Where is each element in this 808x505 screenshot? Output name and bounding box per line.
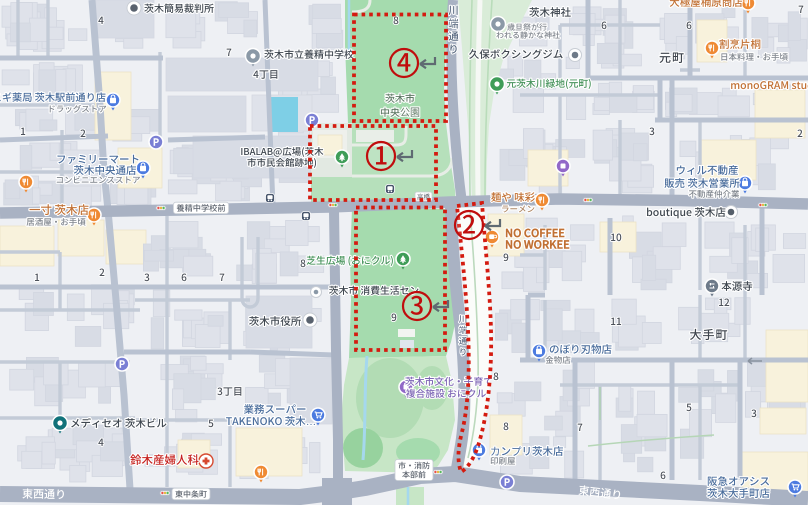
svg-text:3: 3 (751, 405, 757, 420)
svg-text:久保ボクシングジム: 久保ボクシングジム (469, 47, 564, 62)
svg-text:4: 4 (98, 434, 104, 449)
svg-text:6: 6 (686, 17, 692, 32)
svg-text:7: 7 (226, 44, 232, 59)
svg-text:ドラッグストア: ドラッグストア (47, 103, 107, 115)
svg-text:印刷屋: 印刷屋 (490, 455, 516, 467)
svg-text:8: 8 (503, 418, 509, 433)
svg-text:東西通り: 東西通り (22, 486, 66, 503)
svg-text:2: 2 (462, 206, 476, 242)
svg-text:元町: 元町 (659, 49, 685, 66)
svg-text:TAKENOKO 茨木…: TAKENOKO 茨木… (226, 414, 317, 429)
svg-text:monoGRAM stud: monoGRAM stud (730, 78, 808, 93)
svg-text:9: 9 (391, 309, 397, 324)
svg-text:中央公園: 中央公園 (380, 104, 420, 119)
svg-text:7: 7 (577, 419, 583, 434)
svg-text:3丁目: 3丁目 (217, 383, 243, 398)
svg-text:スギ薬局 茨木駅前通り店: スギ薬局 茨木駅前通り店 (0, 89, 106, 104)
svg-text:3: 3 (410, 287, 424, 323)
svg-text:ラーメン: ラーメン (501, 203, 535, 215)
svg-text:10: 10 (610, 229, 622, 244)
svg-text:P: P (153, 134, 159, 148)
svg-text:3: 3 (649, 123, 655, 138)
svg-text:6: 6 (181, 269, 187, 284)
svg-text:本源寺: 本源寺 (721, 279, 753, 294)
svg-text:茨木市: 茨木市 (385, 90, 415, 105)
svg-text:茨木市役所: 茨木市役所 (249, 314, 302, 329)
svg-text:金物店: 金物店 (545, 354, 571, 366)
svg-text:2: 2 (80, 125, 86, 140)
svg-text:12: 12 (718, 294, 730, 309)
svg-text:5: 5 (686, 399, 692, 414)
svg-text:茨木神社: 茨木神社 (529, 5, 571, 20)
svg-text:割烹片桐: 割烹片桐 (719, 37, 761, 52)
svg-text:6: 6 (660, 467, 666, 482)
svg-text:り: り (459, 346, 468, 358)
svg-text:複合施設 おにクル: 複合施設 おにクル (406, 386, 487, 400)
svg-text:東中条町: 東中条町 (175, 489, 207, 500)
svg-text:り: り (448, 42, 459, 57)
svg-text:1: 1 (34, 269, 40, 284)
svg-text:P: P (504, 474, 510, 488)
svg-text:4丁目: 4丁目 (253, 66, 279, 81)
svg-text:1: 1 (374, 137, 388, 173)
svg-text:われる静かな神社: われる静かな神社 (496, 30, 560, 41)
svg-text:P: P (119, 356, 125, 370)
svg-text:日本料理・お手頃: 日本料理・お手頃 (720, 51, 789, 63)
svg-text:芝生広場 (おにクル): 芝生広場 (おにクル) (306, 253, 394, 267)
svg-text:4: 4 (98, 12, 104, 27)
svg-text:不動産仲介業: 不動産仲介業 (688, 188, 740, 200)
svg-text:1: 1 (20, 123, 26, 138)
svg-text:元茨木川緑地(元町): 元茨木川緑地(元町) (506, 76, 591, 90)
svg-text:茨木市 消費生活セン: 茨木市 消費生活セン (329, 283, 420, 297)
svg-text:3: 3 (144, 269, 150, 284)
svg-text:4: 4 (397, 44, 411, 80)
svg-text:NO WORKEE: NO WORKEE (505, 237, 570, 253)
svg-text:2: 2 (99, 264, 105, 279)
svg-text:茨木簡易裁判所: 茨木簡易裁判所 (144, 0, 214, 15)
svg-text:鈴木産婦人科: 鈴木産婦人科 (130, 452, 199, 468)
svg-text:2: 2 (797, 125, 803, 140)
svg-text:養精中学校前: 養精中学校前 (176, 202, 225, 214)
svg-text:5: 5 (208, 415, 214, 430)
svg-text:9: 9 (503, 249, 509, 264)
svg-text:boutique 茨木店: boutique 茨木店 (646, 205, 726, 220)
svg-text:茨木大手町店: 茨木大手町店 (707, 486, 770, 501)
svg-text:大極屋楠原商店: 大極屋楠原商店 (669, 0, 743, 10)
svg-text:大手町: 大手町 (689, 326, 728, 343)
svg-text:本部前: 本部前 (402, 470, 426, 481)
svg-text:7: 7 (219, 269, 225, 284)
svg-text:茨木市立養精中学校: 茨木市立養精中学校 (264, 46, 354, 61)
svg-text:居酒屋・お手頃: 居酒屋・お手頃 (26, 216, 86, 228)
svg-text:8: 8 (493, 368, 499, 383)
svg-text:7: 7 (798, 1, 804, 16)
svg-text:市市民会館跡地): 市市民会館跡地) (247, 155, 317, 169)
svg-text:11: 11 (610, 313, 622, 328)
svg-text:6: 6 (601, 17, 607, 32)
svg-text:メディセオ 茨木ビル: メディセオ 茨木ビル (70, 416, 167, 431)
svg-text:8: 8 (300, 255, 306, 270)
svg-text:コンビニエンスストア: コンビニエンスストア (55, 174, 140, 186)
